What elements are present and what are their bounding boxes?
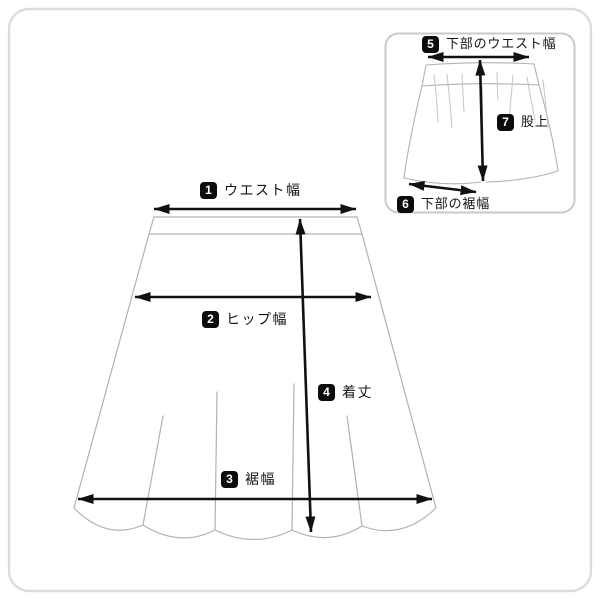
measure-badge-5: 5 <box>422 36 439 53</box>
measure-label-hem-width: 3 裾幅 <box>221 470 276 488</box>
measure-badge-2: 2 <box>202 311 219 328</box>
measure-text-lower-waist-width: 下部のウエスト幅 <box>446 35 556 53</box>
measure-label-waist-width: 1 ウエスト幅 <box>200 181 302 199</box>
measure-label-lower-hem-width: 6 下部の裾幅 <box>397 195 490 213</box>
measure-badge-7: 7 <box>497 114 514 131</box>
measure-badge-1: 1 <box>200 182 217 199</box>
measure-label-length: 4 着丈 <box>318 383 373 401</box>
skirt-gore-line-4 <box>347 416 362 526</box>
measure-label-rise: 7 股上 <box>497 113 549 131</box>
skirt-gore-line-2 <box>215 392 217 530</box>
measure-text-hem-width: 裾幅 <box>245 470 276 488</box>
skirt-right-edge <box>357 217 436 508</box>
measure-label-hip-width: 2 ヒップ幅 <box>202 310 288 328</box>
skirt-hem-scallops <box>74 508 436 540</box>
measure-text-hip-width: ヒップ幅 <box>226 310 288 328</box>
length-arrow <box>300 219 311 532</box>
measure-text-lower-hem-width: 下部の裾幅 <box>421 195 490 213</box>
garment-diagram-art <box>0 0 600 600</box>
size-guide-diagram: 1 ウエスト幅 2 ヒップ幅 3 裾幅 4 着丈 5 下部のウエスト幅 6 下部… <box>0 0 600 600</box>
skirt-outline <box>74 217 436 540</box>
measure-label-lower-waist-width: 5 下部のウエスト幅 <box>422 35 556 53</box>
measure-badge-6: 6 <box>397 196 414 213</box>
measure-text-waist-width: ウエスト幅 <box>224 181 302 199</box>
measure-text-length: 着丈 <box>342 383 373 401</box>
skirt-gore-line-3 <box>292 384 294 530</box>
skirt-gore-line-1 <box>143 416 163 525</box>
measure-badge-3: 3 <box>221 471 238 488</box>
skirt-left-edge <box>74 217 154 508</box>
measure-badge-4: 4 <box>318 384 335 401</box>
measure-text-rise: 股上 <box>521 113 549 131</box>
